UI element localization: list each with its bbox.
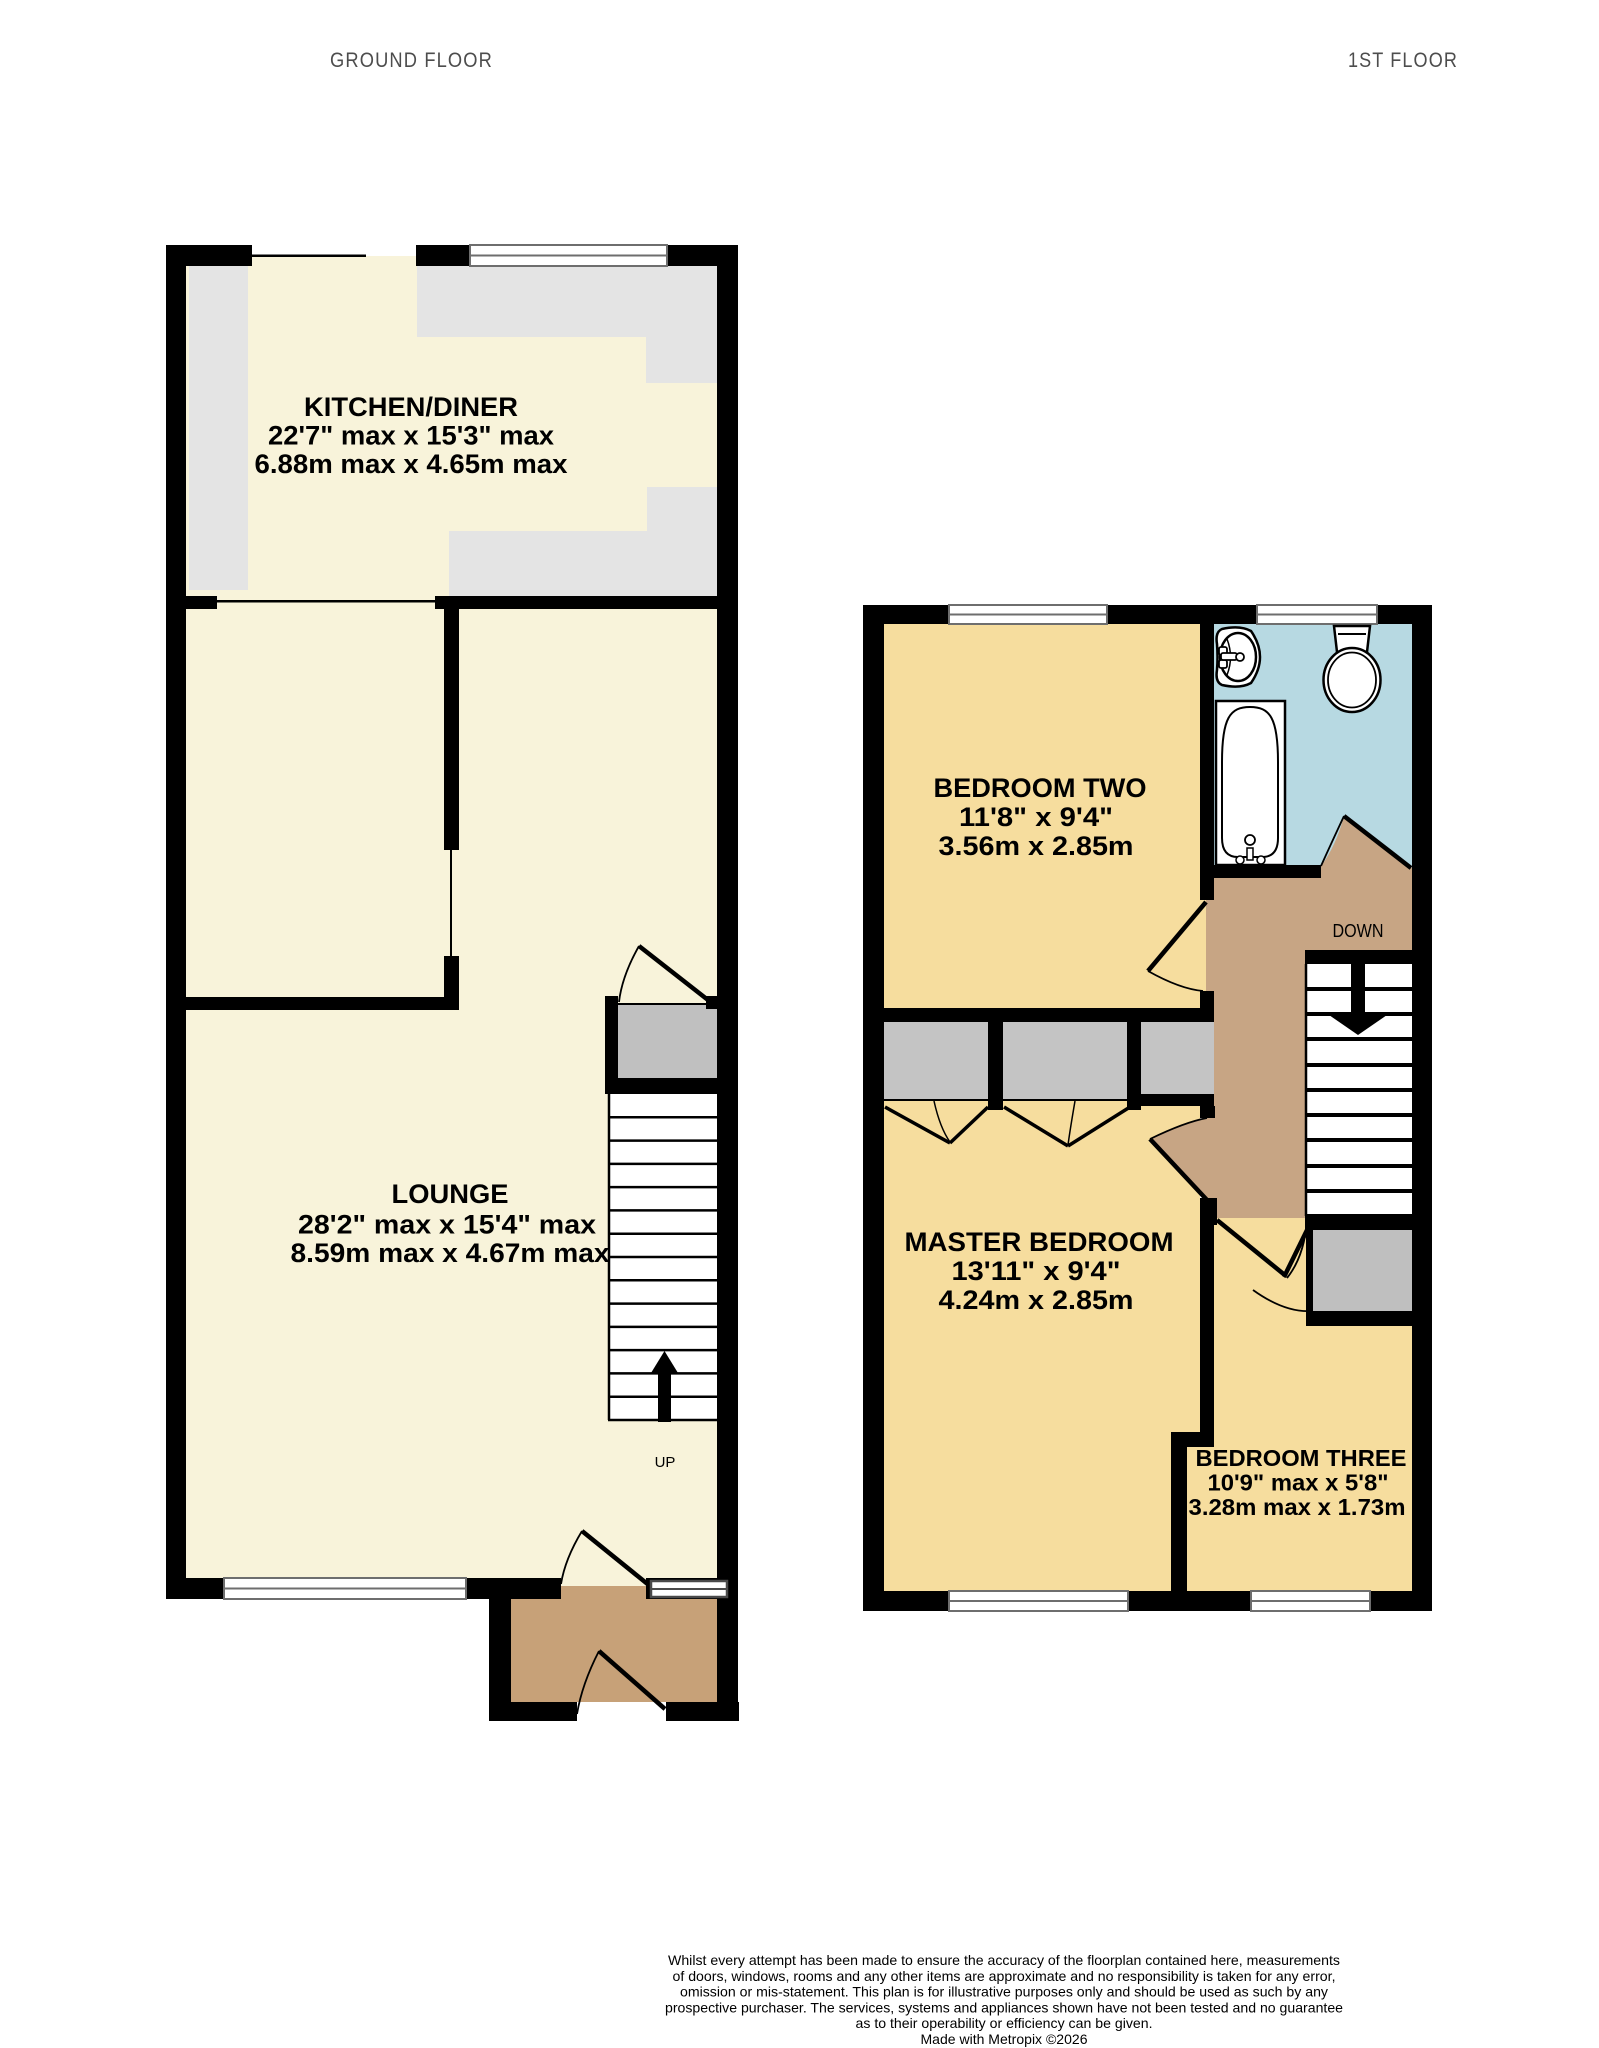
- svg-text:10'9" max x 5'8": 10'9" max x 5'8": [1208, 1470, 1389, 1496]
- svg-text:KITCHEN/DINER: KITCHEN/DINER: [304, 392, 518, 422]
- svg-text:as to their operability or eff: as to their operability or efficiency ca…: [856, 2015, 1153, 2031]
- svg-text:of doors, windows, rooms and a: of doors, windows, rooms and any other i…: [673, 1968, 1336, 1984]
- svg-text:MASTER BEDROOM: MASTER BEDROOM: [905, 1227, 1174, 1257]
- svg-text:8.59m max x 4.67m max: 8.59m max x 4.67m max: [291, 1238, 610, 1268]
- svg-text:6.88m max x 4.65m max: 6.88m max x 4.65m max: [255, 449, 568, 479]
- svg-text:4.24m x 2.85m: 4.24m x 2.85m: [939, 1285, 1134, 1315]
- svg-text:UP: UP: [655, 1454, 676, 1471]
- svg-text:1ST FLOOR: 1ST FLOOR: [1348, 49, 1458, 72]
- svg-text:Made with Metropix ©2026: Made with Metropix ©2026: [921, 2031, 1088, 2047]
- svg-text:BEDROOM THREE: BEDROOM THREE: [1196, 1445, 1407, 1471]
- svg-text:Whilst every attempt has been: Whilst every attempt has been made to en…: [668, 1952, 1340, 1968]
- svg-text:BEDROOM TWO: BEDROOM TWO: [934, 773, 1147, 803]
- svg-text:prospective purchaser. The ser: prospective purchaser. The services, sys…: [665, 1999, 1343, 2015]
- svg-text:3.28m max x 1.73m: 3.28m max x 1.73m: [1189, 1494, 1406, 1520]
- svg-text:GROUND FLOOR: GROUND FLOOR: [330, 49, 493, 72]
- svg-text:28'2" max x 15'4" max: 28'2" max x 15'4" max: [298, 1210, 596, 1240]
- svg-text:11'8" x 9'4": 11'8" x 9'4": [959, 802, 1113, 832]
- svg-text:13'11" x 9'4": 13'11" x 9'4": [952, 1256, 1121, 1286]
- svg-text:LOUNGE: LOUNGE: [392, 1179, 509, 1209]
- svg-text:22'7" max x 15'3" max: 22'7" max x 15'3" max: [268, 421, 554, 451]
- svg-text:DOWN: DOWN: [1333, 921, 1384, 941]
- svg-text:omission or mis-statement. Thi: omission or mis-statement. This plan is …: [680, 1984, 1328, 2000]
- svg-text:3.56m x 2.85m: 3.56m x 2.85m: [939, 831, 1134, 861]
